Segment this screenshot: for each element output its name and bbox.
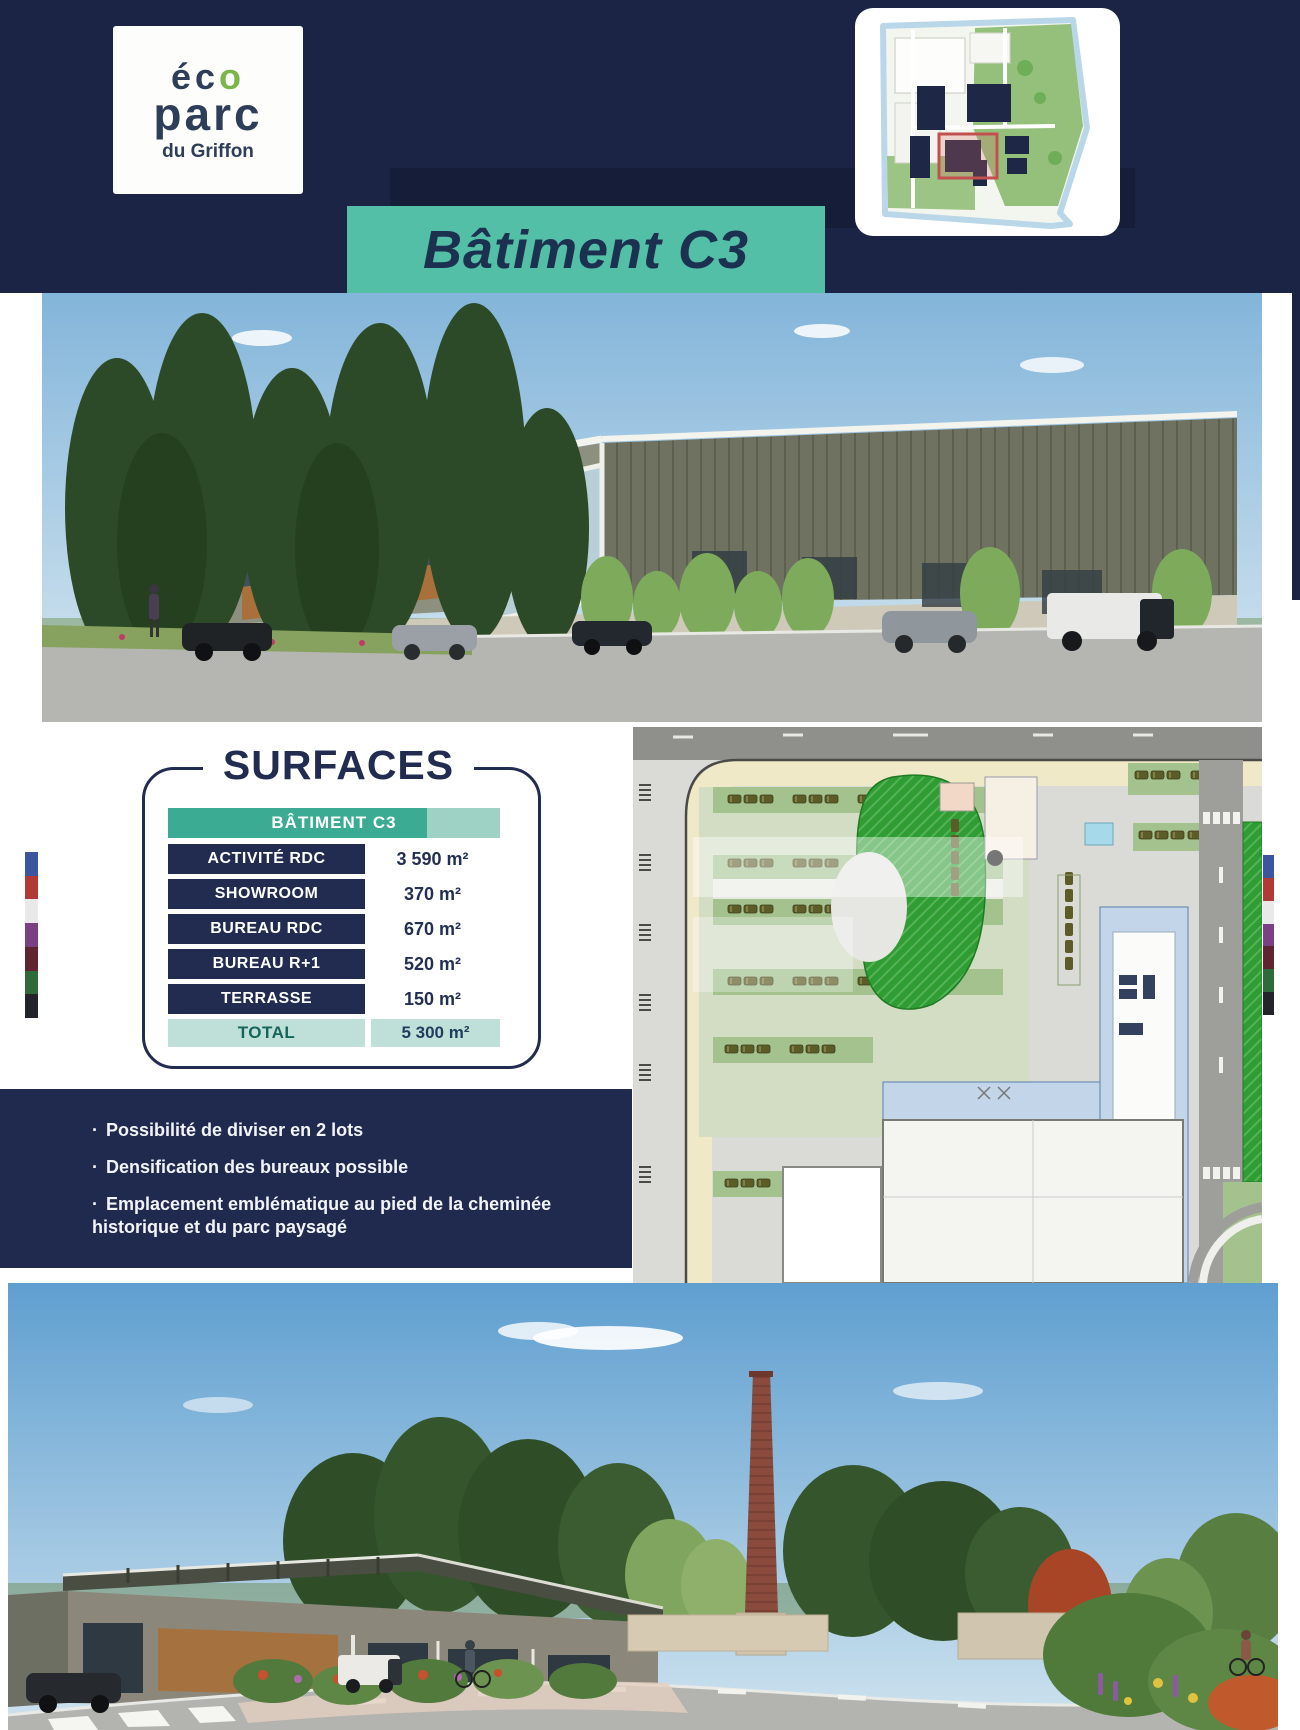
color-legend-right <box>1263 855 1274 1015</box>
row-label: ACTIVITÉ RDC <box>168 844 365 874</box>
brochure-page: éco parc du Griffon Bâtiment C3 <box>0 0 1300 1730</box>
sitemap-thumbnail <box>855 8 1120 236</box>
title-banner: Bâtiment C3 <box>347 206 825 293</box>
table-row: SHOWROOM 370 m² <box>168 879 500 909</box>
row-value: 150 m² <box>365 984 500 1014</box>
bullet-dot: · <box>92 1194 98 1214</box>
logo-line-parc: parc <box>153 91 262 138</box>
table-row: BUREAU R+1 520 m² <box>168 949 500 979</box>
ecoparc-logo: éco parc du Griffon <box>113 26 303 194</box>
table-row: TERRASSE 150 m² <box>168 984 500 1014</box>
row-value: 370 m² <box>365 879 500 909</box>
highlight-item: ·Emplacement emblématique au pied de la … <box>92 1193 562 1241</box>
table-total-row: TOTAL 5 300 m² <box>168 1019 500 1047</box>
highlight-item: ·Densification des bureaux possible <box>92 1156 562 1180</box>
logo-subtitle: du Griffon <box>162 142 254 161</box>
color-legend-left <box>25 852 38 1018</box>
page-title: Bâtiment C3 <box>423 219 749 281</box>
floor-plan-image <box>633 727 1262 1283</box>
table-header-label: BÂTIMENT C3 <box>168 808 500 838</box>
row-value: 520 m² <box>365 949 500 979</box>
highlight-item: ·Possibilité de diviser en 2 lots <box>92 1119 562 1143</box>
row-label: SHOWROOM <box>168 879 365 909</box>
right-edge-strip <box>1292 293 1300 600</box>
sitemap-thumbnail-image <box>855 8 1120 236</box>
main-render-image <box>42 293 1262 722</box>
row-label: TERRASSE <box>168 984 365 1014</box>
bottom-render-image <box>8 1283 1278 1730</box>
row-label: BUREAU R+1 <box>168 949 365 979</box>
row-label: BUREAU RDC <box>168 914 365 944</box>
row-value: 3 590 m² <box>365 844 500 874</box>
row-value: 670 m² <box>365 914 500 944</box>
bullet-dot: · <box>92 1157 98 1177</box>
table-row: BUREAU RDC 670 m² <box>168 914 500 944</box>
total-label: TOTAL <box>168 1019 365 1047</box>
total-value: 5 300 m² <box>371 1019 500 1047</box>
surfaces-title: SURFACES <box>142 742 535 789</box>
table-header-row: BÂTIMENT C3 <box>168 808 500 838</box>
bullet-dot: · <box>92 1120 98 1140</box>
table-row: ACTIVITÉ RDC 3 590 m² <box>168 844 500 874</box>
highlights-panel: ·Possibilité de diviser en 2 lots ·Densi… <box>0 1089 632 1268</box>
surfaces-table: BÂTIMENT C3 ACTIVITÉ RDC 3 590 m² SHOWRO… <box>168 808 500 1047</box>
